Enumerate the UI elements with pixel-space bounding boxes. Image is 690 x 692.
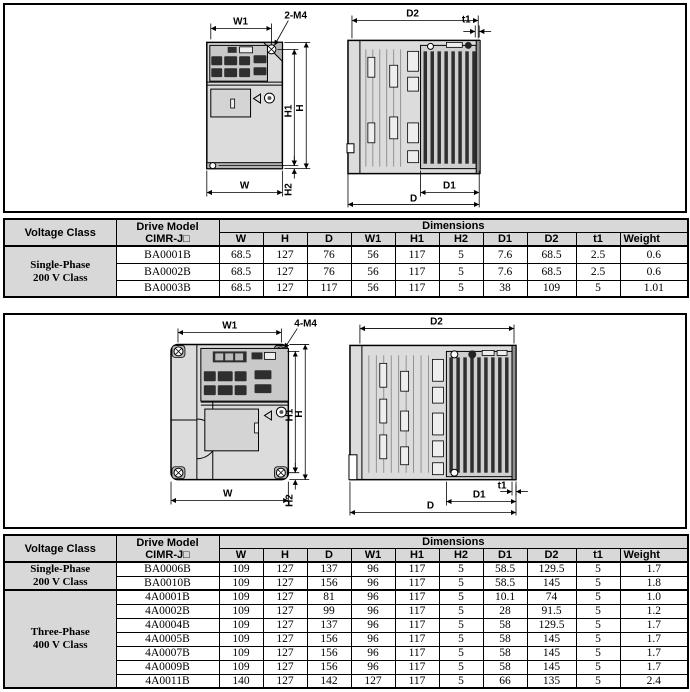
dim-label-t1: t1 (498, 481, 507, 492)
voltage-class-line2: 200 V Class (33, 576, 88, 588)
side-view-drawing (349, 345, 516, 479)
side-notch (349, 455, 357, 480)
cover-latch (231, 99, 235, 108)
dimension-cell: 5 (439, 263, 483, 280)
dim-label-d1: D1 (443, 181, 456, 192)
dim-label-h: H (294, 410, 305, 417)
screw-icon (468, 350, 476, 358)
drive-model-cell: 4A0002B (116, 604, 219, 618)
column-header: H2 (439, 549, 483, 563)
dimension-cell: 5 (439, 562, 483, 576)
dimension-cell: 5 (439, 660, 483, 674)
voltage-class-cell: Single-Phase 200 V Class (4, 562, 116, 590)
dimension-cell: 81 (307, 590, 351, 604)
dimension-cell: 96 (351, 632, 395, 646)
dimension-cell: 137 (307, 618, 351, 632)
dimension-cell: 117 (395, 280, 439, 297)
dimension-cell: 96 (351, 562, 395, 576)
column-header: Weight (620, 549, 688, 563)
dimension-drawing-2: W1 4-M4 H1 H H2 W (5, 315, 685, 527)
dimension-cell: 127 (263, 604, 307, 618)
dimension-cell: 58 (483, 618, 527, 632)
dimension-cell: 1.7 (620, 646, 688, 660)
dimension-cell: 5 (576, 590, 620, 604)
voltage-class-line2: 200 V Class (33, 272, 88, 284)
dimension-cell: 109 (219, 646, 263, 660)
dimension-cell: 127 (263, 646, 307, 660)
column-header: H (263, 233, 307, 247)
dimension-cell: 5 (439, 604, 483, 618)
mounting-plate (476, 40, 480, 173)
dimension-cell: 1.7 (620, 632, 688, 646)
dim-label-d2: D2 (430, 317, 443, 328)
column-header: H2 (439, 233, 483, 247)
drive-model-header-line2: CIMR-J□ (145, 233, 190, 245)
table-row: Three-Phase 400 V Class 4A0001B 10912781… (4, 590, 688, 604)
dimension-cell: 96 (351, 590, 395, 604)
figure-box-1: W1 2-M4 H1 H H2 W (3, 3, 687, 213)
dimension-cell: 58 (483, 646, 527, 660)
dim-label-w: W (223, 489, 233, 500)
table-header: Voltage Class Drive Model CIMR-J□ Dimens… (4, 219, 688, 246)
voltage-class-cell: Single-Phase 200 V Class (4, 246, 116, 297)
dimension-cell: 96 (351, 646, 395, 660)
dimension-cell: 66 (483, 674, 527, 688)
dip-switch (228, 47, 253, 53)
column-header: D1 (483, 549, 527, 563)
voltage-class-header: Voltage Class (4, 219, 116, 246)
column-header: D (307, 233, 351, 247)
dimension-cell: 5 (439, 280, 483, 297)
dimension-cell: 58 (483, 660, 527, 674)
table-row: Single-Phase 200 V Class BA0006B 1091271… (4, 562, 688, 576)
screw-icon (451, 351, 458, 358)
top-tab (497, 350, 507, 355)
front-view-drawing (207, 42, 283, 168)
dimension-cell: 5 (576, 618, 620, 632)
dim-label-d: D (427, 500, 434, 511)
dimensions-table-1: Voltage Class Drive Model CIMR-J□ Dimens… (3, 218, 689, 298)
dimension-cell: 76 (307, 246, 351, 263)
dimension-cell: 1.7 (620, 618, 688, 632)
mounting-hole-icon (210, 163, 216, 169)
column-header: D2 (527, 549, 576, 563)
drive-model-cell: 4A0011B (116, 674, 219, 688)
drive-model-cell: BA0001B (116, 246, 219, 263)
dimension-cell: 140 (219, 674, 263, 688)
dimension-cell: 109 (219, 604, 263, 618)
voltage-class-line1: Three-Phase (31, 626, 90, 638)
column-header: W (219, 233, 263, 247)
dimension-cell: 28 (483, 604, 527, 618)
drive-model-cell: BA0002B (116, 263, 219, 280)
dimension-cell: 1.8 (620, 576, 688, 590)
cover-latch (255, 423, 259, 433)
dimension-cell: 156 (307, 660, 351, 674)
dimension-cell: 127 (263, 562, 307, 576)
dimension-cell: 127 (351, 674, 395, 688)
dimension-cell: 5 (439, 646, 483, 660)
column-header: W (219, 549, 263, 563)
dimension-cell: 117 (395, 660, 439, 674)
dimension-cell: 58.5 (483, 576, 527, 590)
drive-model-cell: BA0003B (116, 280, 219, 297)
dim-label-w1: W1 (222, 321, 237, 332)
dimension-cell: 156 (307, 576, 351, 590)
dimension-cell: 117 (395, 646, 439, 660)
column-header: H1 (395, 549, 439, 563)
front-cover-plate (205, 409, 259, 451)
column-header: W1 (351, 233, 395, 247)
voltage-class-line1: Single-Phase (30, 563, 90, 575)
dimension-cell: 5 (576, 562, 620, 576)
dimension-cell: 129.5 (527, 618, 576, 632)
dimension-cell: 109 (219, 660, 263, 674)
voltage-class-header: Voltage Class (4, 535, 116, 562)
dimension-cell: 68.5 (527, 263, 576, 280)
dimension-cell: 117 (395, 632, 439, 646)
dimension-cell: 109 (219, 562, 263, 576)
dimension-cell: 109 (219, 632, 263, 646)
dimensions-header: Dimensions (219, 535, 688, 549)
drive-model-cell: 4A0007B (116, 646, 219, 660)
screw-icon (451, 469, 458, 476)
drive-model-header-line2: CIMR-J□ (145, 549, 190, 561)
dimension-cell: 1.7 (620, 562, 688, 576)
dim-label-w1: W1 (233, 16, 248, 27)
dimension-cell: 117 (395, 590, 439, 604)
dimension-cell: 135 (527, 674, 576, 688)
figure-box-2: W1 4-M4 H1 H H2 W (3, 313, 687, 529)
dimension-cell: 5 (576, 604, 620, 618)
dimension-cell: 117 (395, 562, 439, 576)
side-notch (347, 144, 354, 153)
dimension-cell: 91.5 (527, 604, 576, 618)
dimension-cell: 117 (395, 674, 439, 688)
table-row: Single-Phase 200 V Class BA0001B 68.5127… (4, 246, 688, 263)
heatsink-fins (449, 357, 508, 472)
top-tab (482, 350, 494, 355)
drive-model-cell: 4A0005B (116, 632, 219, 646)
column-header: t1 (576, 549, 620, 563)
dim-label-h2: H2 (283, 183, 294, 196)
column-header: t1 (576, 233, 620, 247)
column-header: H (263, 549, 307, 563)
dimension-cell: 5 (439, 632, 483, 646)
dimension-cell: 127 (263, 674, 307, 688)
dimension-cell: 127 (263, 576, 307, 590)
dimension-cell: 76 (307, 263, 351, 280)
dimension-cell: 127 (263, 660, 307, 674)
dimension-cell: 56 (351, 263, 395, 280)
drive-model-cell: 4A0001B (116, 590, 219, 604)
column-header: D1 (483, 233, 527, 247)
dim-label-m4: 2-M4 (284, 11, 307, 22)
screw-icon (264, 93, 274, 103)
dimension-cell: 7.6 (483, 263, 527, 280)
voltage-class-cell: Three-Phase 400 V Class (4, 590, 116, 688)
dimension-cell: 127 (263, 590, 307, 604)
dimension-cell: 5 (576, 576, 620, 590)
front-view-drawing (171, 344, 288, 479)
dimension-cell: 127 (263, 280, 307, 297)
dimension-cell: 129.5 (527, 562, 576, 576)
dim-label-d2: D2 (406, 9, 419, 20)
dimension-cell: 117 (395, 604, 439, 618)
dim-label-h: H (295, 104, 306, 111)
mounting-hole-icon (267, 45, 276, 54)
dimension-cell: 117 (395, 576, 439, 590)
dimension-drawing-1: W1 2-M4 H1 H H2 W (5, 5, 685, 211)
dimension-cell: 109 (219, 618, 263, 632)
dimension-cell: 96 (351, 660, 395, 674)
dimension-cell: 109 (527, 280, 576, 297)
voltage-class-line1: Single-Phase (30, 259, 90, 271)
drive-model-header-line1: Drive Model (136, 221, 198, 233)
dimension-cell: 156 (307, 632, 351, 646)
dimension-cell: 96 (351, 604, 395, 618)
dimension-cell: 1.0 (620, 590, 688, 604)
dimension-cell: 68.5 (527, 246, 576, 263)
dimension-cell: 0.6 (620, 246, 688, 263)
dim-label-m4: 4-M4 (294, 319, 317, 330)
column-header: D (307, 549, 351, 563)
dimension-cell: 156 (307, 646, 351, 660)
dimension-cell: 127 (263, 263, 307, 280)
dimension-cell: 127 (263, 632, 307, 646)
dimension-cell: 5 (439, 590, 483, 604)
dimension-cell: 5 (576, 646, 620, 660)
column-header: D2 (527, 233, 576, 247)
dimension-cell: 10.1 (483, 590, 527, 604)
dimension-cell: 38 (483, 280, 527, 297)
dimension-cell: 137 (307, 562, 351, 576)
dim-label-t1: t1 (462, 15, 471, 26)
dimension-cell: 5 (439, 618, 483, 632)
dimension-cell: 68.5 (219, 263, 263, 280)
side-view-drawing (347, 40, 480, 173)
dimension-cell: 5 (576, 660, 620, 674)
drive-model-header: Drive Model CIMR-J□ (116, 219, 219, 246)
voltage-class-line2: 400 V Class (33, 639, 88, 651)
dimension-cell: 74 (527, 590, 576, 604)
drive-model-cell: 4A0004B (116, 618, 219, 632)
dimension-cell: 96 (351, 618, 395, 632)
column-header: W1 (351, 549, 395, 563)
dimension-cell: 145 (527, 576, 576, 590)
dimension-cell: 56 (351, 246, 395, 263)
dimension-cell: 0.6 (620, 263, 688, 280)
column-header: H1 (395, 233, 439, 247)
dimension-cell: 145 (527, 632, 576, 646)
dimension-cell: 5 (439, 674, 483, 688)
screw-icon (428, 43, 434, 49)
dimension-cell: 117 (395, 618, 439, 632)
manual-page: W1 2-M4 H1 H H2 W (0, 0, 690, 692)
drive-model-cell: 4A0009B (116, 660, 219, 674)
dimension-cell: 127 (263, 246, 307, 263)
dim-label-d: D (410, 193, 417, 204)
dimension-cell: 2.4 (620, 674, 688, 688)
dimension-cell: 2.5 (576, 263, 620, 280)
dimensions-header: Dimensions (219, 219, 688, 233)
dimension-cell: 145 (527, 646, 576, 660)
drive-model-header-line1: Drive Model (136, 537, 198, 549)
dim-label-h1: H1 (283, 104, 294, 117)
dimension-cell: 2.5 (576, 246, 620, 263)
dimension-cell: 117 (307, 280, 351, 297)
dim-label-d1: D1 (473, 490, 486, 501)
dimensions-table-2: Voltage Class Drive Model CIMR-J□ Dimens… (3, 534, 689, 689)
dimension-cell: 5 (439, 246, 483, 263)
dimension-cell: 58.5 (483, 562, 527, 576)
dimension-cell: 68.5 (219, 246, 263, 263)
dimension-cell: 109 (219, 576, 263, 590)
dimension-cell: 96 (351, 576, 395, 590)
dimension-cell: 99 (307, 604, 351, 618)
dimension-cell: 127 (263, 618, 307, 632)
column-header: Weight (620, 233, 688, 247)
dimension-cell: 1.2 (620, 604, 688, 618)
dimension-cell: 117 (395, 263, 439, 280)
dimension-cell: 109 (219, 590, 263, 604)
dimension-cell: 5 (576, 674, 620, 688)
dimension-cell: 7.6 (483, 246, 527, 263)
dimension-cell: 58 (483, 632, 527, 646)
dimension-cell: 5 (576, 280, 620, 297)
drive-model-cell: BA0010B (116, 576, 219, 590)
dimension-cell: 5 (439, 576, 483, 590)
dimension-cell: 56 (351, 280, 395, 297)
dimension-cell: 68.5 (219, 280, 263, 297)
drive-model-cell: BA0006B (116, 562, 219, 576)
dimension-cell: 117 (395, 246, 439, 263)
dimension-cell: 5 (576, 632, 620, 646)
dimension-cell: 142 (307, 674, 351, 688)
dimension-cell: 1.01 (620, 280, 688, 297)
screw-icon (465, 42, 472, 49)
dim-label-w: W (240, 181, 250, 192)
dimension-cell: 1.7 (620, 660, 688, 674)
dimension-cell: 145 (527, 660, 576, 674)
mounting-plate (512, 345, 516, 479)
drive-model-header: Drive Model CIMR-J□ (116, 535, 219, 562)
table-header: Voltage Class Drive Model CIMR-J□ Dimens… (4, 535, 688, 562)
top-tab (446, 42, 462, 47)
